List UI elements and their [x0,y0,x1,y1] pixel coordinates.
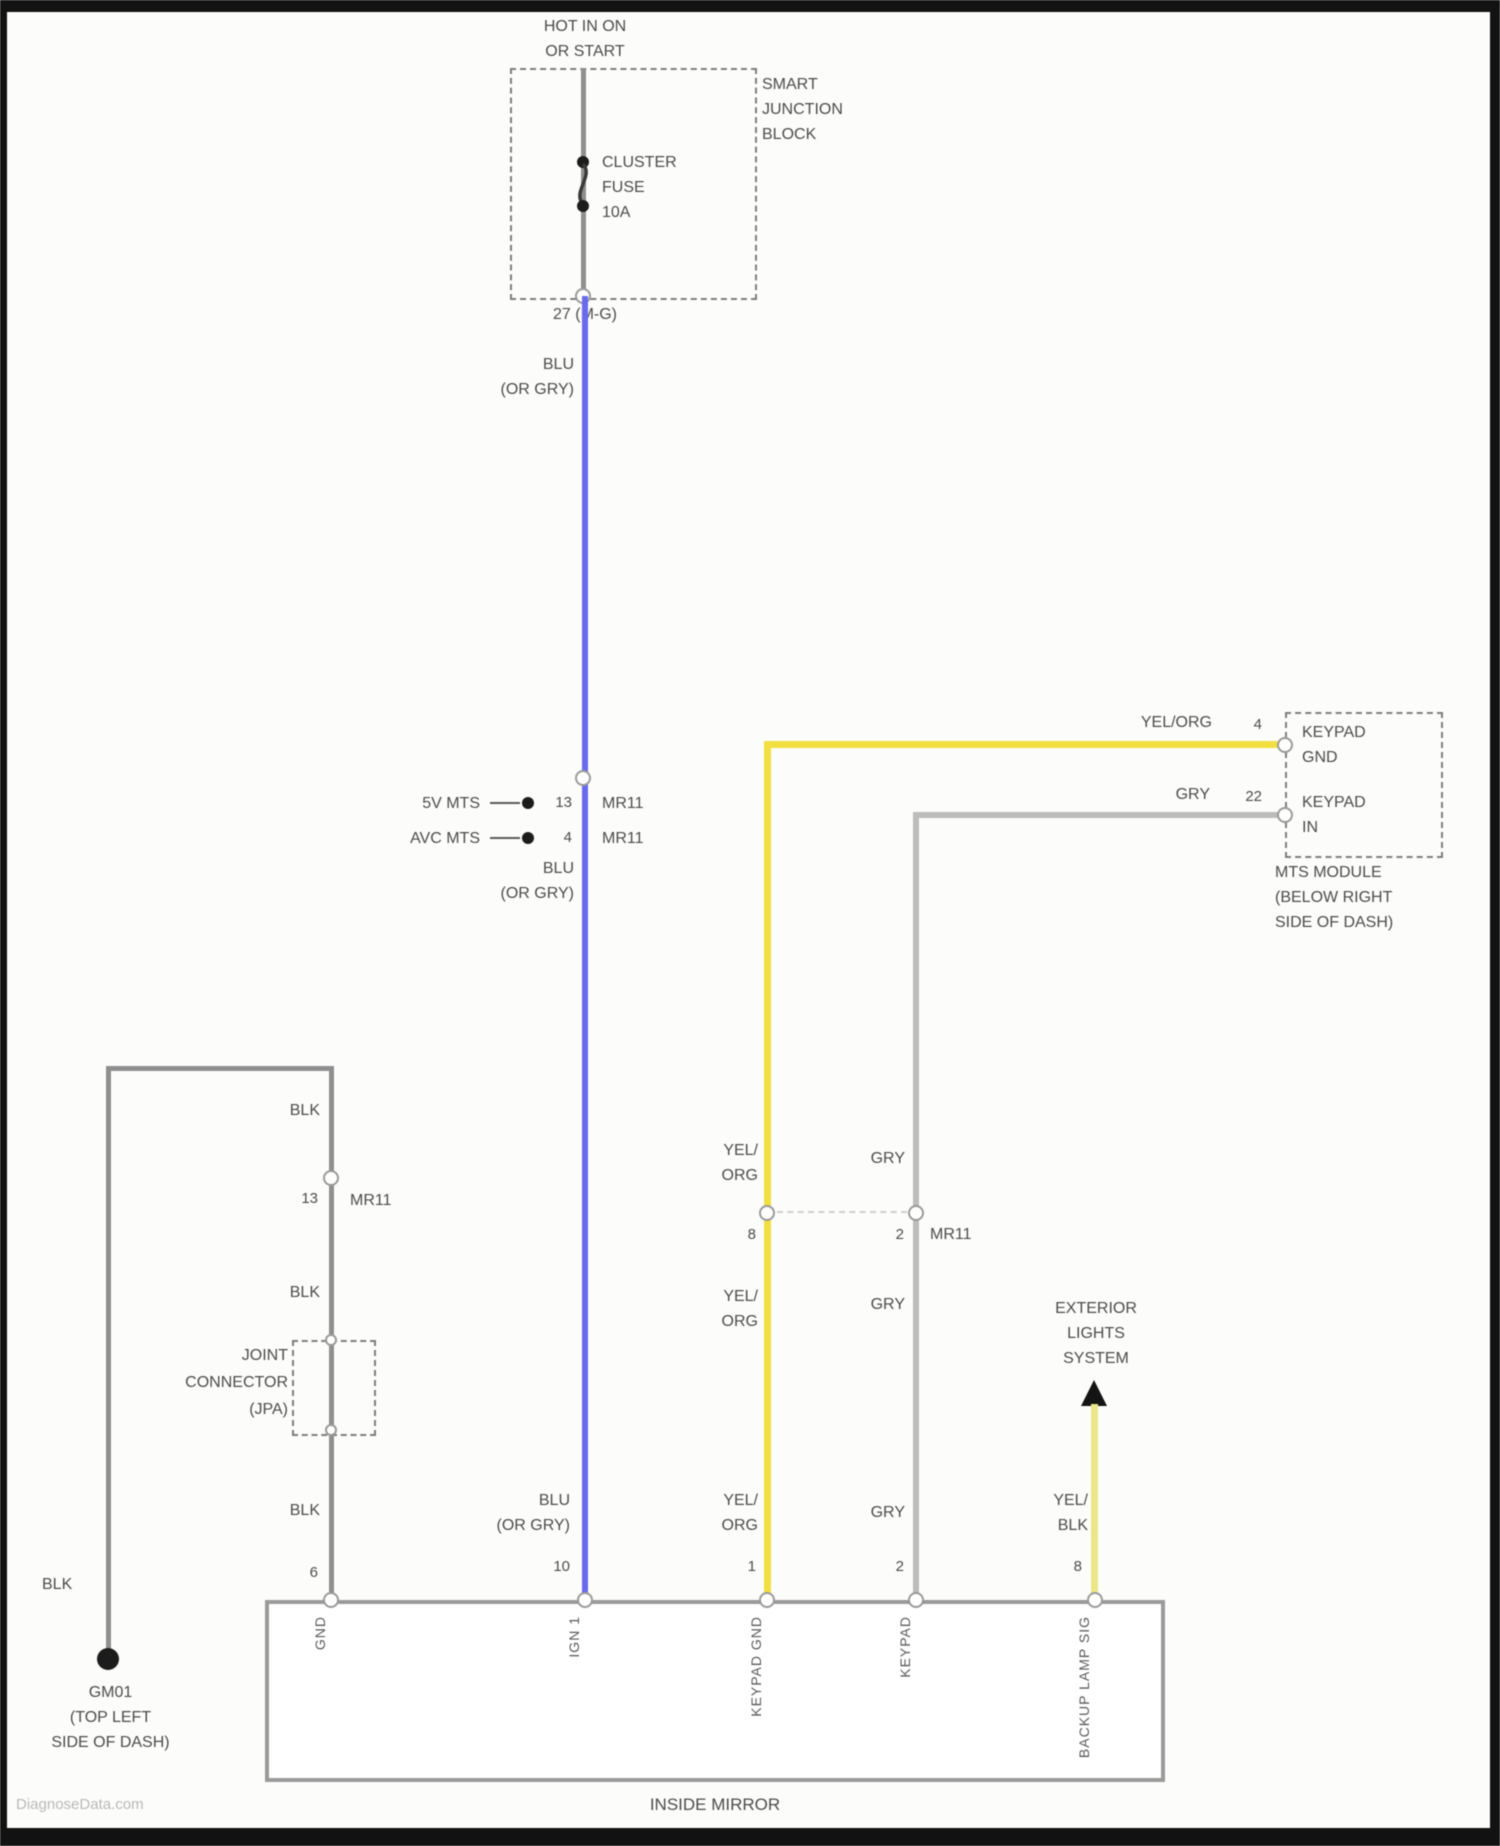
mr11-blk-pin-13: 13 [280,1190,318,1207]
blk-label-3: BLK [262,1498,320,1523]
power-source-line2: OR START [500,39,670,64]
blu-bottom-line2: (OR GRY) [442,1513,570,1538]
fuse-caption: CLUSTER FUSE 10A [602,150,677,225]
ref-arrow-dot-2 [522,832,534,844]
yel-bottom-line2: ORG [694,1513,758,1538]
ref-avc-mts: AVC MTS [358,826,480,851]
mts-caption-line3: SIDE OF DASH) [1275,910,1393,935]
blu-wire-label-mid: BLU (OR GRY) [450,856,574,906]
mr11-label-row1: MR11 [602,791,644,816]
mts-pin-b-name: KEYPAD IN [1302,790,1366,840]
blu-mid-line2: (OR GRY) [450,881,574,906]
yel-lower-line1: YEL/ [694,1284,758,1309]
yel-org-label-lower: YEL/ ORG [694,1284,758,1334]
ref-arrow-line-1 [490,802,520,804]
joint-caption-line1: JOINT [130,1342,288,1369]
junction-block-caption: SMART JUNCTION BLOCK [762,72,843,147]
junction-block-name-line2: JUNCTION [762,97,843,122]
blu-mid-line1: BLU [450,856,574,881]
inside-mirror-caption: INSIDE MIRROR [465,1792,965,1817]
frame-left-bar [0,0,7,1846]
fuse-rating: 10A [602,200,677,225]
joint-caption-line3: (JPA) [130,1396,288,1423]
gry-label-bottom: GRY [843,1500,905,1525]
blu-bottom-line1: BLU [442,1488,570,1513]
exterior-line2: LIGHTS [1022,1321,1170,1346]
power-source-line1: HOT IN ON [500,14,670,39]
junction-block-name-line1: SMART [762,72,843,97]
yel-org-wire-horizontal [767,741,1283,748]
exterior-line1: EXTERIOR [1022,1296,1170,1321]
ref-arrow-dot-1 [522,797,534,809]
blk-label-2: BLK [262,1280,320,1305]
mirror-pin-1: 1 [718,1558,756,1575]
blk-label-1: BLK [262,1098,320,1123]
mirror-connector-icon-4 [908,1592,924,1608]
mr11-blk-label: MR11 [350,1188,392,1213]
mts-pin-4: 4 [1232,716,1262,733]
mirror-pin-10: 10 [530,1558,570,1575]
gry-wire-label: GRY [1148,782,1210,807]
yel-org-label-upper: YEL/ ORG [694,1138,758,1188]
ground-loc-line1: (TOP LEFT [18,1705,203,1730]
mirror-pin-name-gnd: GND [312,1616,328,1650]
mts-pin-22: 22 [1226,788,1262,805]
mr11-yel-connector-icon [759,1205,775,1221]
mts-pin-a-name: KEYPAD GND [1302,720,1366,770]
exterior-line3: SYSTEM [1022,1346,1170,1371]
blk-mirror-wire [329,1066,334,1600]
mts-module-caption: MTS MODULE (BELOW RIGHT SIDE OF DASH) [1275,860,1393,935]
blu-wire-label-top: BLU (OR GRY) [440,352,574,402]
junction-block-name-line3: BLOCK [762,122,843,147]
yelblk-line2: BLK [1018,1513,1088,1538]
mr11-label-row2: MR11 [602,826,644,851]
joint-connector-top-icon [325,1334,337,1346]
joint-connector-box [292,1340,376,1436]
mr11-blk-connector-icon [323,1170,339,1186]
mts-caption-line2: (BELOW RIGHT [1275,885,1393,910]
mr11-pin-2: 2 [868,1226,904,1243]
blu-wire [582,296,588,1600]
ground-loc-line2: SIDE OF DASH) [18,1730,203,1755]
ref-5v-mts: 5V MTS [368,791,480,816]
mirror-pin-name-ign: IGN 1 [566,1616,582,1658]
blk-ground-wire [106,1066,111,1656]
yel-lower-line2: ORG [694,1309,758,1334]
watermark: DiagnoseData.com [16,1796,144,1813]
mr11-gry-connector-icon [908,1205,924,1221]
fuse-bottom-terminal [577,200,589,212]
yel-upper-line2: ORG [694,1163,758,1188]
mirror-connector-icon-5 [1087,1592,1103,1608]
frame-top-bar [0,0,1500,12]
mirror-pin-name-keypad-gnd: KEYPAD GND [748,1616,764,1717]
mr11-pin-8: 8 [720,1226,756,1243]
ref-arrow-line-2 [490,837,520,839]
mts-connector-b-icon [1277,807,1293,823]
joint-connector-caption: JOINT CONNECTOR (JPA) [130,1342,288,1423]
mts-connector-a-icon [1277,737,1293,753]
gry-label-upper: GRY [843,1146,905,1171]
mirror-connector-icon-2 [577,1592,593,1608]
power-source-label: HOT IN ON OR START [500,14,670,64]
mts-pin-b-line2: IN [1302,815,1366,840]
ground-caption: GM01 (TOP LEFT SIDE OF DASH) [18,1680,203,1755]
inside-mirror-box [265,1600,1165,1782]
fuse-name-line2: FUSE [602,175,677,200]
frame-right-bar [1490,0,1500,1846]
yel-org-label-bottom: YEL/ ORG [694,1488,758,1538]
mr11-mid-label: MR11 [930,1222,972,1247]
mts-pin-a-line1: KEYPAD [1302,720,1366,745]
blu-label-line2: (OR GRY) [440,377,574,402]
blu-label-line1: BLU [440,352,574,377]
yelblk-line1: YEL/ [1018,1488,1088,1513]
yel-bottom-line1: YEL/ [694,1488,758,1513]
yel-org-wire-vertical [764,741,771,1600]
mts-pin-a-line2: GND [1302,745,1366,770]
gry-wire-horizontal [916,812,1283,818]
ground-icon [97,1648,119,1670]
ground-name: GM01 [18,1680,203,1705]
blk-label-left: BLK [42,1572,72,1597]
joint-caption-line2: CONNECTOR [130,1369,288,1396]
mr11-connector-link [777,1211,907,1213]
mts-pin-b-line1: KEYPAD [1302,790,1366,815]
offpage-arrow-icon [1081,1380,1107,1406]
mts-caption-line1: MTS MODULE [1275,860,1393,885]
mr11-pin-4: 4 [540,829,572,846]
fuse-name-line1: CLUSTER [602,150,677,175]
mr11-blu-connector-icon [575,770,591,786]
yel-blk-wire [1091,1404,1098,1600]
exterior-lights-caption: EXTERIOR LIGHTS SYSTEM [1022,1296,1170,1371]
frame-bottom-bar [0,1828,1500,1846]
mirror-pin-name-backup: BACKUP LAMP SIG [1076,1616,1092,1758]
blk-branch-top-wire [106,1066,334,1071]
mirror-pin-8: 8 [1044,1558,1082,1575]
blu-wire-label-bottom: BLU (OR GRY) [442,1488,570,1538]
yel-upper-line1: YEL/ [694,1138,758,1163]
mirror-pin-name-keypad: KEYPAD [897,1616,913,1678]
mr11-pin-13: 13 [540,794,572,811]
joint-connector-bottom-icon [325,1424,337,1436]
mirror-connector-icon-3 [759,1592,775,1608]
mirror-pin-6: 6 [280,1564,318,1581]
yel-org-wire-label: YEL/ORG [1100,710,1212,735]
mirror-connector-icon-1 [323,1592,339,1608]
gry-label-lower: GRY [843,1292,905,1317]
mirror-pin-2: 2 [866,1558,904,1575]
yel-blk-label-bottom: YEL/ BLK [1018,1488,1088,1538]
wiring-diagram-page: HOT IN ON OR START SMART JUNCTION BLOCK … [0,0,1500,1846]
